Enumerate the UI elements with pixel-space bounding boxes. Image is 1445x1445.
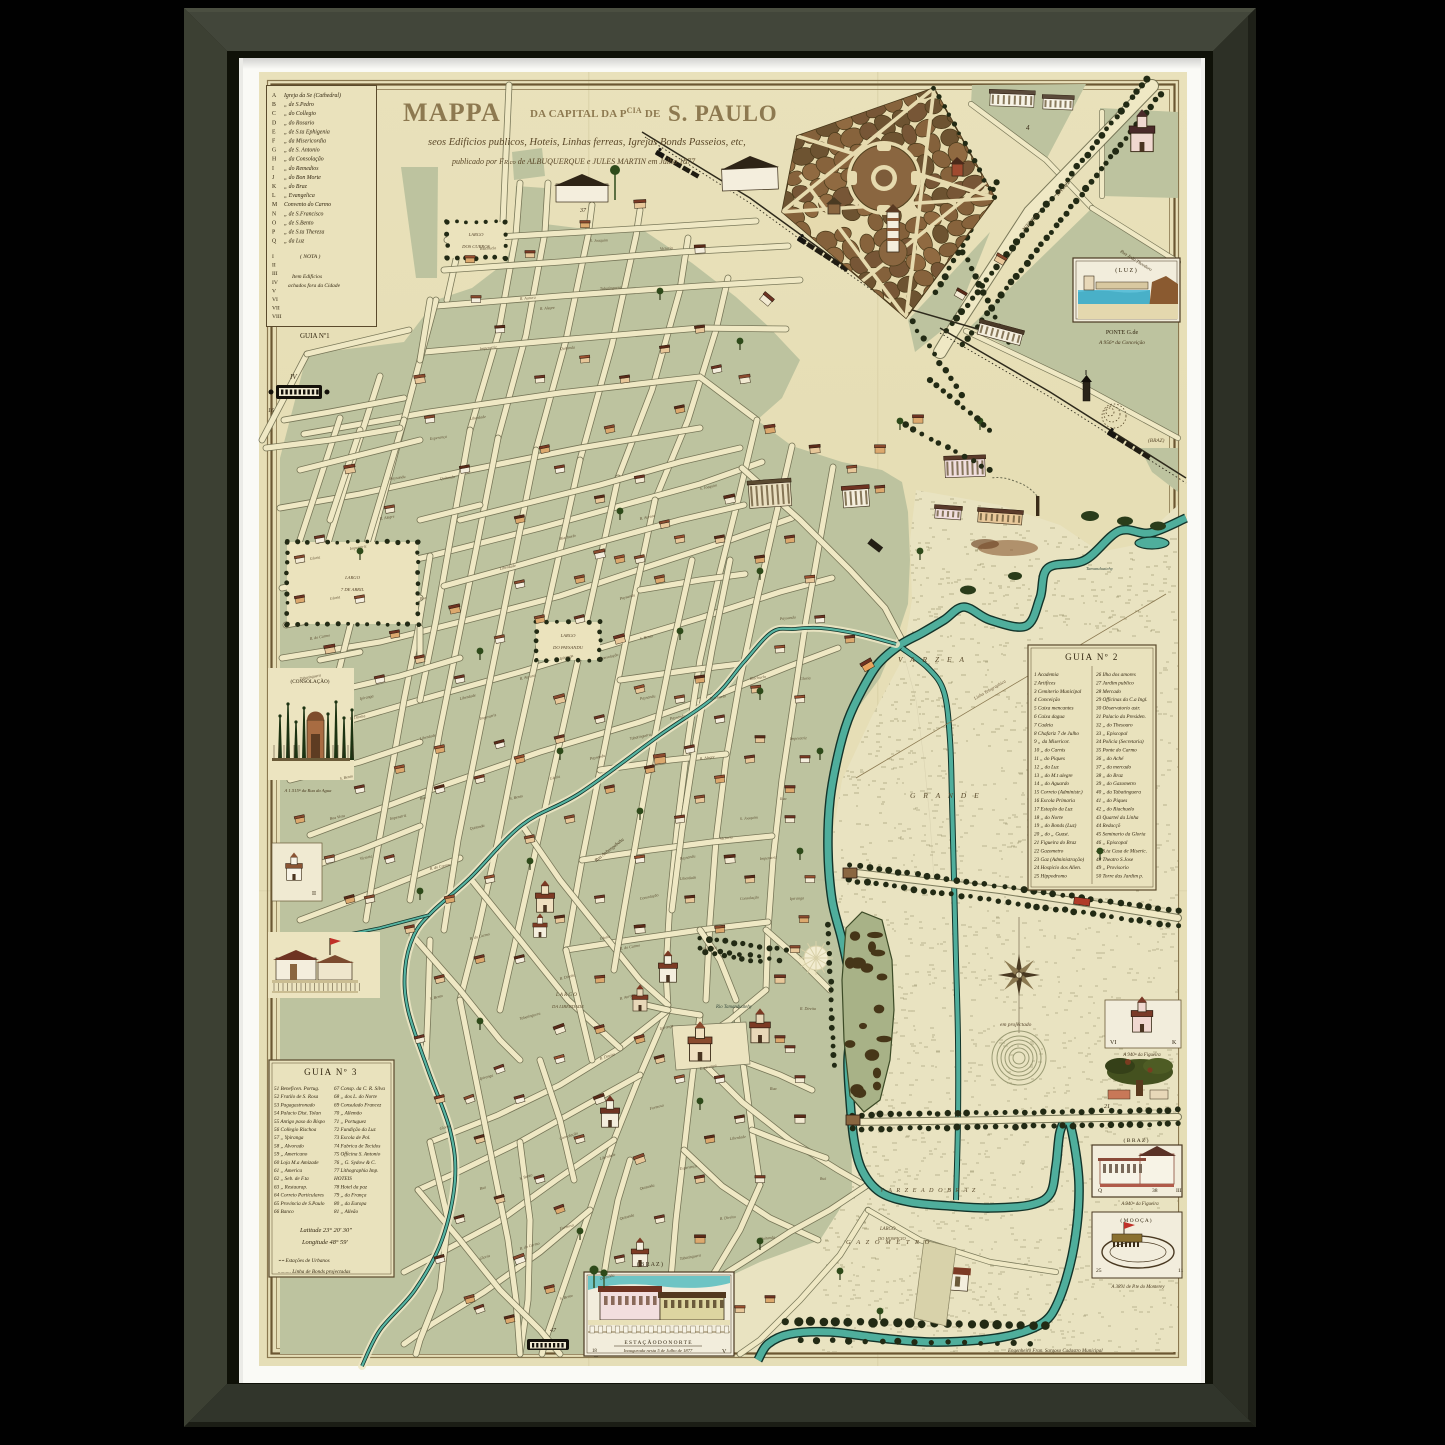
svg-text:V: V (272, 288, 276, 294)
svg-text:.......... Linha de Bonds pro: .......... Linha de Bonds projectadas (278, 1269, 350, 1275)
svg-text:„ de S.ta Ephigenia: „ de S.ta Ephigenia (284, 129, 330, 135)
svg-text:E: E (272, 129, 276, 135)
svg-text:VII: VII (272, 306, 280, 312)
svg-text:76 „ G. Sydow & C.: 76 „ G. Sydow & C. (334, 1160, 376, 1166)
svg-text:47: 47 (550, 1327, 557, 1334)
svg-text:12 „ da Luz: 12 „ da Luz (1034, 764, 1059, 770)
svg-text:48 Theatro S.Jose: 48 Theatro S.Jose (1096, 856, 1134, 863)
svg-text:25 Hippodromo: 25 Hippodromo (1034, 874, 1067, 880)
svg-text:64 Correio Particulares: 64 Correio Particulares (274, 1192, 324, 1199)
svg-text:Imperatriz: Imperatriz (789, 735, 808, 741)
svg-text:em projectado: em projectado (1000, 1022, 1032, 1028)
svg-text:40 „ da Tabatinguera: 40 „ da Tabatinguera (1096, 789, 1141, 796)
svg-text:O: O (272, 220, 276, 226)
svg-text:( B R A Z ): ( B R A Z ) (1123, 1137, 1148, 1144)
svg-text:38 „ do Braz: 38 „ do Braz (1096, 773, 1123, 779)
svg-text:42 „ do Riachuelo: 42 „ do Riachuelo (1096, 805, 1135, 812)
svg-text:36 „ do Aché: 36 „ do Aché (1096, 756, 1124, 762)
svg-text:G: G (272, 148, 276, 154)
svg-text:II: II (272, 263, 276, 269)
svg-text:A 956ᵐ da Conceição: A 956ᵐ da Conceição (1098, 340, 1145, 346)
svg-text:R. Direita: R. Direita (799, 1006, 816, 1011)
svg-text:Rio Tamanduatehy: Rio Tamanduatehy (715, 1005, 753, 1010)
svg-text:publicado por FR.co de ALBUQUE: publicado por FR.co de ALBUQUERQUE e JUL… (451, 157, 696, 166)
svg-text:54 Palacio Dist. Tolan: 54 Palacio Dist. Tolan (274, 1110, 321, 1117)
svg-text:Tamanduatehy: Tamanduatehy (1086, 566, 1114, 571)
svg-text:79 „ da França: 79 „ da França (334, 1193, 367, 1199)
svg-text:DA CAPITAL DA PCIA DE: DA CAPITAL DA PCIA DE (530, 106, 661, 120)
svg-text:51 Beneficen. Portug.: 51 Beneficen. Portug. (274, 1085, 319, 1092)
svg-text:18 „ do Norte: 18 „ do Norte (1034, 815, 1064, 821)
svg-text:achados fora da Cidade: achados fora da Cidade (288, 282, 341, 289)
svg-text:Inaugurada nesta 5 de Julho de: Inaugurada nesta 5 de Julho de 1877 (623, 1348, 693, 1353)
svg-text:( NOTA ): ( NOTA ) (300, 253, 320, 260)
svg-text:14 „ do Aguardo: 14 „ do Aguardo (1034, 780, 1069, 787)
svg-text:22 Gazometro: 22 Gazometro (1034, 848, 1064, 854)
svg-text:16 Escola Primaria: 16 Escola Primaria (1034, 798, 1075, 804)
svg-text:Q: Q (1098, 1188, 1102, 1194)
svg-text:27 Jardim publico: 27 Jardim publico (1096, 680, 1134, 686)
svg-text:GUIA Nº1: GUIA Nº1 (300, 332, 330, 340)
svg-text:62 „ Seb. de F.ta: 62 „ Seb. de F.ta (274, 1176, 309, 1182)
svg-text:A 1.515ᵐ da Rua da Agua: A 1.515ᵐ da Rua da Agua (284, 788, 333, 793)
svg-text:K: K (1172, 1040, 1177, 1046)
svg-text:III: III (1176, 1188, 1182, 1194)
svg-text:„ do Collegio: „ do Collegio (284, 111, 316, 117)
svg-text:19 „ do Bonds (Luz): 19 „ do Bonds (Luz) (1034, 822, 1077, 829)
svg-text:VI: VI (1110, 1040, 1116, 1046)
svg-text:45 Seminario da Gloria: 45 Seminario da Gloria (1096, 831, 1146, 838)
svg-text:PONTE G.de: PONTE G.de (1106, 330, 1139, 336)
svg-text:68 „ dos L. do Norte: 68 „ dos L. do Norte (334, 1094, 378, 1100)
svg-text:( L U Z ): ( L U Z ) (1115, 267, 1136, 274)
svg-text:VIII: VIII (272, 314, 282, 320)
svg-text:25: 25 (1096, 1268, 1102, 1274)
svg-text:56 Collegio Rischoa: 56 Collegio Rischoa (274, 1127, 317, 1133)
svg-text:60 Loja M.a Amizade: 60 Loja M.a Amizade (274, 1160, 319, 1166)
svg-text:III: III (272, 271, 278, 277)
svg-text:„ da Consolação: „ da Consolação (284, 157, 324, 163)
svg-text:II: II (312, 891, 316, 897)
svg-text:„ do Rosario: „ do Rosario (284, 120, 314, 126)
svg-text:V A R Z E A: V A R Z E A (898, 655, 967, 664)
svg-text:28 Mercado: 28 Mercado (1096, 689, 1121, 695)
svg-text:E S T A Ç Ã O D O N O R T E: E S T A Ç Ã O D O N O R T E (624, 1338, 692, 1346)
svg-text:69 Consulado Francez: 69 Consulado Francez (334, 1102, 381, 1108)
svg-text:Rua: Rua (779, 796, 787, 801)
svg-text:13 „ do M.t alegre: 13 „ do M.t alegre (1034, 773, 1073, 779)
svg-text:DA LIBERDADE: DA LIBERDADE (551, 1004, 584, 1009)
svg-text:29 Officinas da C.a Ingl.: 29 Officinas da C.a Ingl. (1096, 696, 1148, 703)
svg-text:DO PAYSANDU: DO PAYSANDU (552, 645, 584, 650)
svg-text:IV: IV (289, 373, 297, 381)
svg-text:„ de S.ta Thereza: „ de S.ta Thereza (284, 230, 324, 236)
svg-text:78 Hotel da paz: 78 Hotel da paz (334, 1184, 367, 1190)
svg-text:L A R G O: L A R G O (555, 993, 577, 998)
svg-text:18: 18 (592, 1349, 597, 1354)
svg-text:C: C (272, 111, 276, 117)
svg-text:43 Quartel da Linha: 43 Quartel da Linha (1096, 814, 1139, 821)
svg-text:S. Joaquim: S. Joaquim (590, 237, 608, 243)
svg-text:B: B (272, 102, 276, 108)
svg-text:IV: IV (272, 280, 278, 286)
svg-text:10 „ do Carnis: 10 „ do Carnis (1034, 748, 1065, 754)
svg-text:Gloria: Gloria (800, 675, 811, 681)
svg-text:17 Estação da Luz: 17 Estação da Luz (1034, 806, 1072, 812)
svg-text:11: 11 (1178, 1268, 1184, 1274)
svg-text:Engenheiro Fran. Sargoso Ca: Engenheiro Fran. Sargoso Cadastro Munici… (1007, 1349, 1103, 1354)
svg-text:81 „ Alleão: 81 „ Alleão (334, 1209, 359, 1215)
svg-text:50 Torre das Jardim p.: 50 Torre das Jardim p. (1096, 874, 1143, 880)
svg-text:33 „ Episcopal: 33 „ Episcopal (1096, 731, 1128, 737)
svg-text:seos Edificios publicos, Hotei: seos Edificios publicos, Hoteis, Linhas … (428, 137, 746, 148)
svg-text:„ de S.Pedro: „ de S.Pedro (284, 102, 314, 108)
svg-text:7 Cadeia: 7 Cadeia (1034, 722, 1053, 728)
svg-text:„ da Luz: „ da Luz (284, 239, 305, 245)
svg-text:HOTEIS: HOTEIS (333, 1176, 352, 1182)
svg-text:„ da Misericordia: „ da Misericordia (284, 139, 326, 145)
svg-text:5 Caixa mencantes: 5 Caixa mencantes (1034, 706, 1073, 712)
svg-text:55 Antigo paso do Bispo: 55 Antigo paso do Bispo (274, 1119, 325, 1125)
svg-text:I: I (272, 166, 274, 172)
svg-text:59 „ Americano: 59 „ Americano (274, 1152, 308, 1158)
svg-text:63 „ Restaurap.: 63 „ Restaurap. (274, 1184, 307, 1190)
svg-text:V A R Z E A D O B R A Z: V A R Z E A D O B R A Z (880, 1187, 977, 1194)
svg-text:G R A N D E: G R A N D E (910, 791, 982, 800)
svg-text:21 Figueira do Braz: 21 Figueira do Braz (1034, 840, 1076, 846)
svg-text:32 „ do Thesouro: 32 „ do Thesouro (1096, 722, 1133, 728)
svg-text:47 S.ta Casa de Miseric.: 47 S.ta Casa de Miseric. (1096, 847, 1147, 854)
svg-text:72 Fundição da Luz: 72 Fundição da Luz (334, 1127, 376, 1133)
svg-text:M: M (272, 202, 277, 208)
svg-text:Item Edificios: Item Edificios (291, 273, 322, 280)
svg-text:70 „ Allemão: 70 „ Allemão (334, 1111, 362, 1117)
svg-text:24 Hospicio dos Alien.: 24 Hospicio dos Alien. (1034, 864, 1081, 871)
svg-text:„ do Braz: „ do Braz (284, 184, 308, 190)
svg-text:Victoria: Victoria (660, 245, 673, 251)
svg-text:73 Escola de Pol.: 73 Escola de Pol. (334, 1135, 371, 1141)
svg-text:„ de S.Francisco: „ de S.Francisco (284, 211, 324, 217)
svg-text:(BRAZ): (BRAZ) (1148, 437, 1165, 444)
svg-text:D: D (272, 120, 276, 126)
svg-text:66 Banco: 66 Banco (274, 1209, 294, 1215)
svg-text:31 Palacio da Presiden.: 31 Palacio da Presiden. (1096, 714, 1146, 720)
svg-text:Convento do Carmo: Convento do Carmo (284, 202, 331, 208)
svg-text:„ de S. Antonio: „ de S. Antonio (284, 148, 320, 154)
svg-text:LARGO: LARGO (344, 575, 360, 580)
svg-text:„ do Bon Morte: „ do Bon Morte (284, 175, 321, 181)
svg-text:Igreja da Se (Cathedral): Igreja da Se (Cathedral) (283, 92, 341, 99)
svg-text:LARGO: LARGO (560, 633, 576, 638)
svg-text:„ Evangelica: „ Evangelica (284, 193, 315, 199)
svg-text:S. PAULO: S. PAULO (668, 101, 777, 126)
svg-text:( B R A Z ): ( B R A Z ) (637, 1261, 663, 1268)
svg-text:Longitude 48° 59': Longitude 48° 59' (301, 1239, 348, 1246)
svg-text:16: 16 (268, 408, 274, 414)
svg-text:75 Officina S. Antonio: 75 Officina S. Antonio (334, 1151, 381, 1158)
svg-text:61 „ America: 61 „ America (274, 1168, 303, 1174)
svg-text:LARGO: LARGO (879, 1227, 896, 1232)
svg-text:39 „ do Gazometro: 39 „ do Gazometro (1096, 781, 1136, 787)
svg-text:7 DE ABRIL: 7 DE ABRIL (341, 587, 365, 592)
svg-text:49 „ Provisorio: 49 „ Provisorio (1096, 864, 1129, 871)
svg-text:67 Consp. da C. R. Silva: 67 Consp. da C. R. Silva (334, 1086, 385, 1092)
svg-text:30 Observatorio astr.: 30 Observatorio astr. (1096, 706, 1141, 712)
svg-text:4: 4 (1026, 124, 1030, 132)
svg-text:41 „ do Piques: 41 „ do Piques (1096, 797, 1127, 804)
svg-text:74 Fabrica de Tecidos: 74 Fabrica de Tecidos (334, 1142, 380, 1149)
svg-text:53 Pagagastronado: 53 Pagagastronado (274, 1102, 315, 1108)
svg-text:VI: VI (272, 297, 278, 303)
svg-text:GUIA Nº 2: GUIA Nº 2 (1065, 652, 1119, 662)
svg-text:Rua: Rua (769, 1086, 776, 1091)
svg-text:V: V (722, 1349, 727, 1355)
svg-text:A 940ᵐ da Figueira: A 940ᵐ da Figueira (1120, 1202, 1159, 1207)
svg-text:LARGO: LARGO (468, 232, 484, 237)
svg-text:77 Lithographia Imp.: 77 Lithographia Imp. (334, 1168, 379, 1174)
svg-text:Riachuelo: Riachuelo (479, 245, 496, 251)
svg-text:GUIA Nº 3: GUIA Nº 3 (304, 1067, 358, 1077)
svg-text:A 3891 de P.te do Monterey: A 3891 de P.te do Monterey (1111, 1285, 1166, 1290)
svg-text:Ipiranga: Ipiranga (789, 895, 804, 901)
svg-text:I: I (272, 254, 274, 260)
svg-text:6 Caixa dagua: 6 Caixa dagua (1034, 714, 1065, 720)
svg-text:15 Correio (Administr.): 15 Correio (Administr.) (1034, 789, 1083, 796)
svg-text:58 „ Alvorado: 58 „ Alvorado (274, 1143, 304, 1149)
svg-text:Rua: Rua (819, 1176, 827, 1182)
svg-text:34 Policia (Secretaria): 34 Policia (Secretaria) (1096, 738, 1144, 745)
svg-text:44 Redacçõ: 44 Redacçõ (1096, 822, 1121, 829)
svg-text:37 „ da mercado: 37 „ da mercado (1096, 764, 1132, 770)
svg-text:11 „ do Piques: 11 „ do Piques (1034, 756, 1065, 762)
svg-text:38: 38 (1152, 1188, 1158, 1194)
svg-text:DO HOSPICIO: DO HOSPICIO (877, 1236, 907, 1241)
svg-text:4 Conceição: 4 Conceição (1034, 696, 1060, 703)
svg-text:⌁⌁ Estações de Urbanos: ⌁⌁ Estações de Urbanos (278, 1258, 330, 1264)
svg-text:Latitude 23° 20' 30'': Latitude 23° 20' 30'' (299, 1227, 353, 1234)
svg-text:21: 21 (1104, 1104, 1110, 1110)
svg-text:26 Ilha dos amores: 26 Ilha dos amores (1096, 672, 1136, 678)
svg-text:L: L (272, 193, 276, 199)
svg-text:3 Cemiterio Municipal: 3 Cemiterio Municipal (1034, 689, 1082, 695)
svg-text:9 „ da Misericor.: 9 „ da Misericor. (1034, 739, 1070, 745)
svg-text:52 Fratilo de S. Rosa: 52 Fratilo de S. Rosa (274, 1094, 319, 1100)
svg-text:37: 37 (579, 208, 587, 214)
svg-text:20 „ do „ Guast.: 20 „ do „ Guast. (1034, 832, 1069, 838)
svg-text:2 Artifices: 2 Artifices (1034, 679, 1055, 686)
svg-text:65 Provincia de S.Paulo: 65 Provincia de S.Paulo (274, 1201, 325, 1207)
svg-text:71 „ Portuguez: 71 „ Portuguez (334, 1119, 366, 1125)
svg-text:23 Gaz (Administração): 23 Gaz (Administração) (1034, 856, 1084, 863)
svg-text:MAPPA: MAPPA (403, 98, 501, 127)
svg-text:46 „ Episcopal: 46 „ Episcopal (1096, 839, 1128, 846)
svg-text:A 940ᵐ da Figueira: A 940ᵐ da Figueira (1122, 1053, 1161, 1058)
svg-text:8 Chafariz 7 de Julho: 8 Chafariz 7 de Julho (1034, 730, 1079, 737)
svg-text:„ de S.Bento: „ de S.Bento (284, 220, 314, 226)
svg-text:80 „ da Europa: 80 „ da Europa (334, 1201, 367, 1207)
svg-text:35 Ponte do Carmo: 35 Ponte do Carmo (1096, 748, 1137, 754)
svg-text:P: P (272, 230, 275, 236)
svg-text:„ do Remedios: „ do Remedios (284, 166, 319, 172)
svg-text:1 Academia: 1 Academia (1034, 672, 1059, 678)
svg-text:57 „ Ypiranga: 57 „ Ypiranga (274, 1135, 304, 1141)
